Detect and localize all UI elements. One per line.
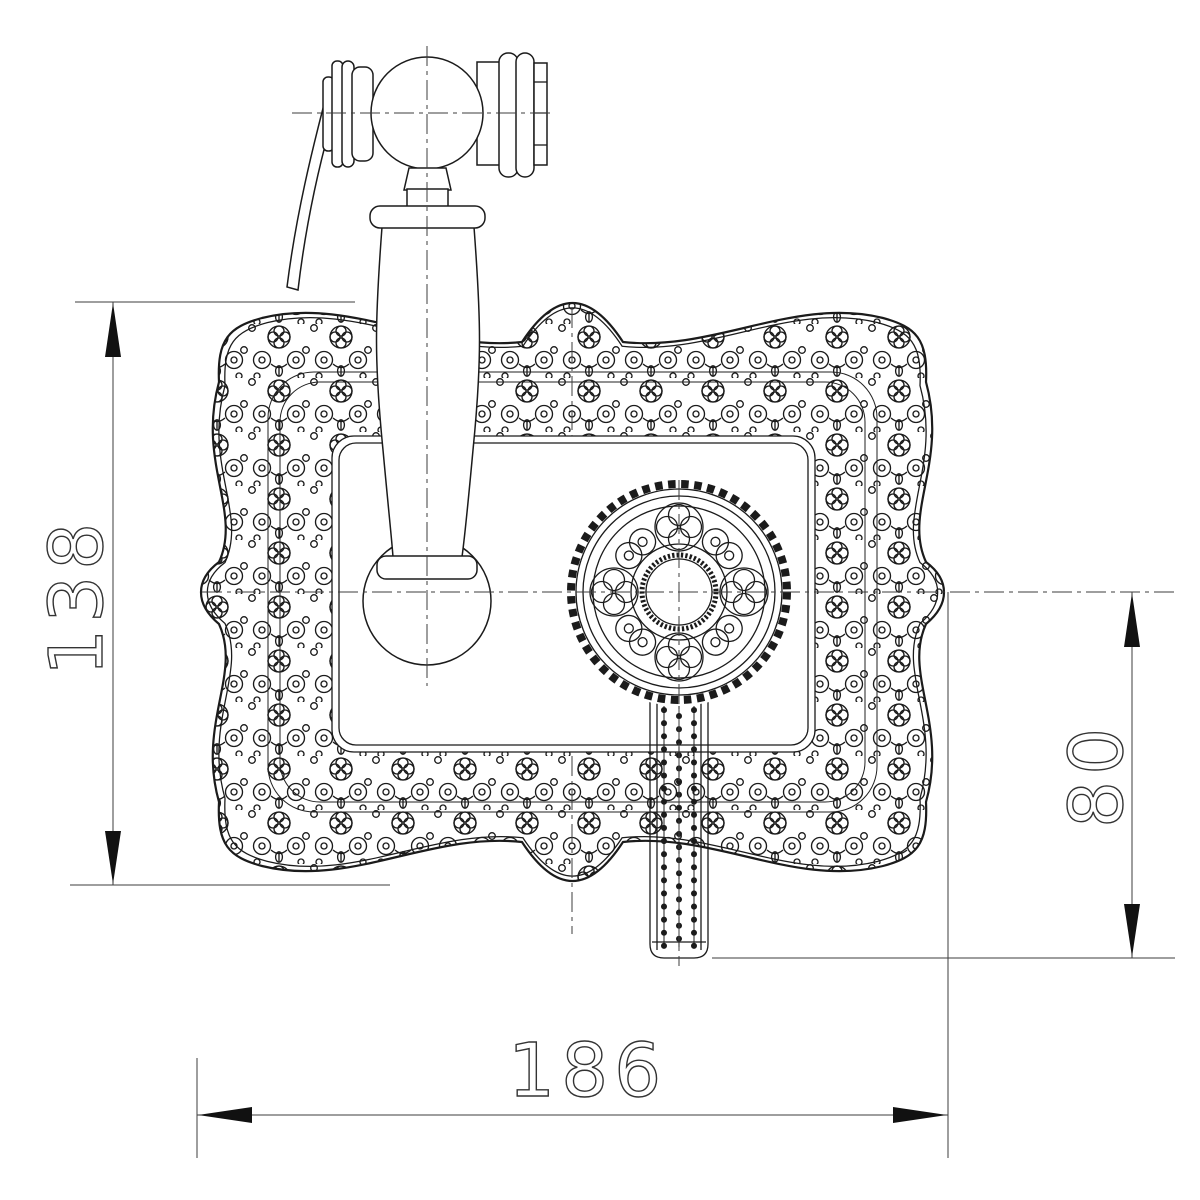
sprayer-handle [377,227,480,557]
left-coupling-collar [352,67,373,161]
arrow-down-height [105,831,121,884]
arrow-right-width [893,1107,947,1123]
arrow-down-handle [1124,904,1140,957]
arrow-up-handle [1124,593,1140,647]
dim-text-width: 186 [508,1028,667,1114]
technical-drawing-svg: 138 80 186 [0,0,1200,1200]
nozzle-ring-2 [516,53,534,177]
dim-text-height: 138 [34,517,120,676]
nozzle-ring-1 [499,53,518,177]
dim-text-handle: 80 [1054,722,1140,828]
arrow-up-height [105,303,121,357]
nozzle-end-cap [534,63,547,165]
drawing-canvas: 138 80 186 [0,0,1200,1200]
arrow-left-width [198,1107,252,1123]
